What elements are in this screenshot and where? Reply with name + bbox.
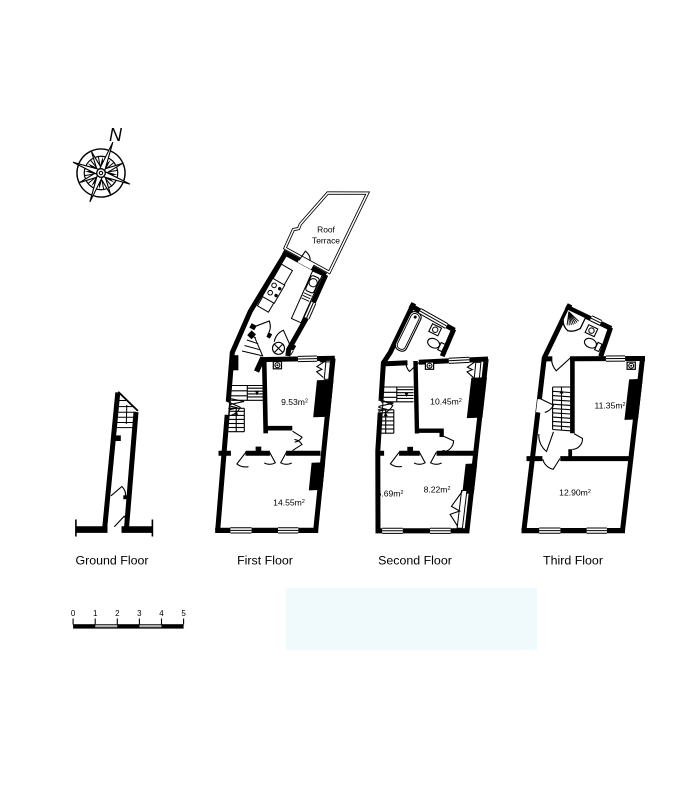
svg-text:0: 0 xyxy=(71,609,76,618)
svg-text:5: 5 xyxy=(181,609,186,618)
svg-text:12.90m2: 12.90m2 xyxy=(559,488,591,498)
svg-text:First Floor: First Floor xyxy=(237,554,293,568)
svg-text:Roof: Roof xyxy=(317,225,335,235)
svg-text:Ground Floor: Ground Floor xyxy=(75,554,148,568)
svg-text:Terrace: Terrace xyxy=(312,236,340,246)
svg-text:Second Floor: Second Floor xyxy=(378,554,452,568)
svg-text:9.53m2: 9.53m2 xyxy=(281,397,308,407)
svg-text:11.35m2: 11.35m2 xyxy=(595,401,626,411)
svg-text:14.55m2: 14.55m2 xyxy=(273,498,305,508)
svg-text:8.22m2: 8.22m2 xyxy=(424,485,451,495)
svg-text:Third Floor: Third Floor xyxy=(543,554,603,568)
svg-text:3: 3 xyxy=(137,609,142,618)
svg-text:1: 1 xyxy=(93,609,98,618)
svg-text:10.45m2: 10.45m2 xyxy=(430,397,462,407)
svg-text:2: 2 xyxy=(115,609,120,618)
svg-text:6.69m2: 6.69m2 xyxy=(377,489,404,499)
svg-text:4: 4 xyxy=(159,609,164,618)
svg-text:N: N xyxy=(109,125,123,145)
